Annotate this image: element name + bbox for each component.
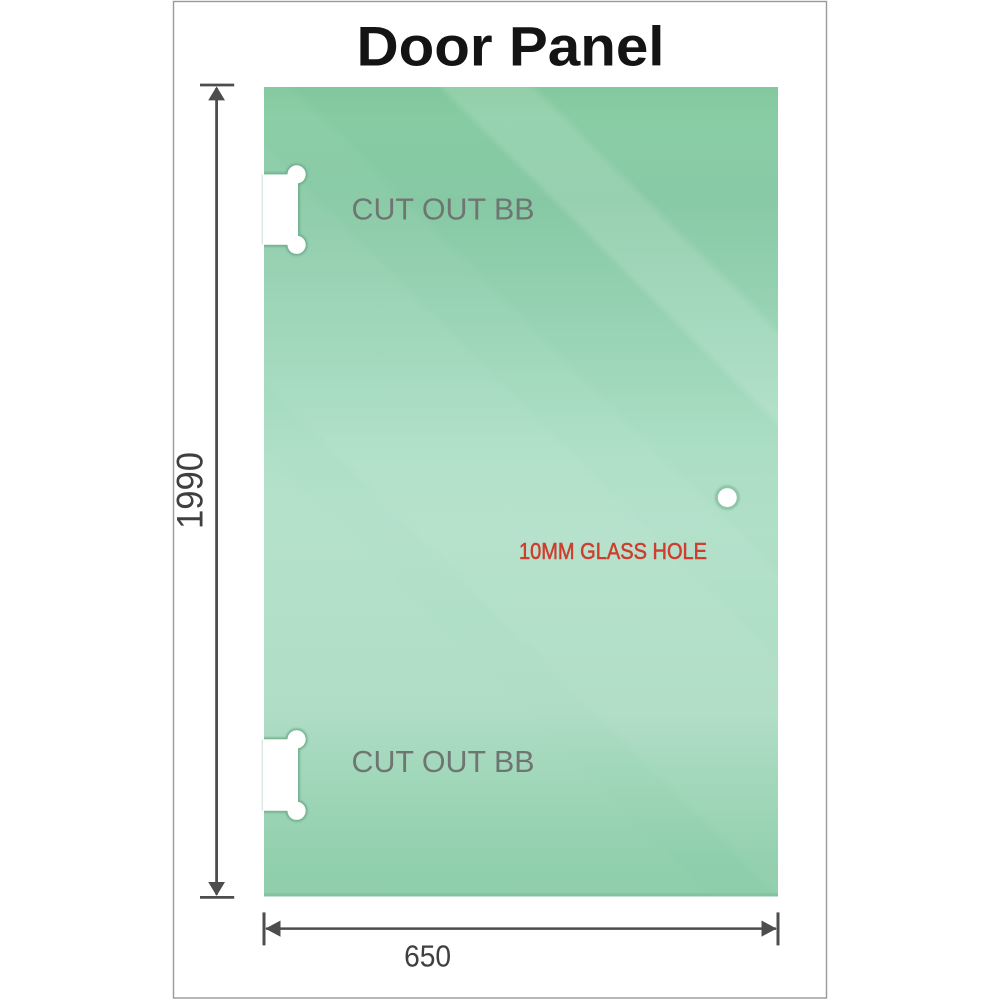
svg-text:CUT OUT BB: CUT OUT BB <box>352 192 535 227</box>
svg-text:1990: 1990 <box>170 452 211 529</box>
svg-text:Door Panel: Door Panel <box>357 15 665 78</box>
svg-text:650: 650 <box>404 938 451 973</box>
svg-text:10MM GLASS HOLE: 10MM GLASS HOLE <box>519 538 707 564</box>
svg-text:CUT OUT BB: CUT OUT BB <box>352 744 535 779</box>
